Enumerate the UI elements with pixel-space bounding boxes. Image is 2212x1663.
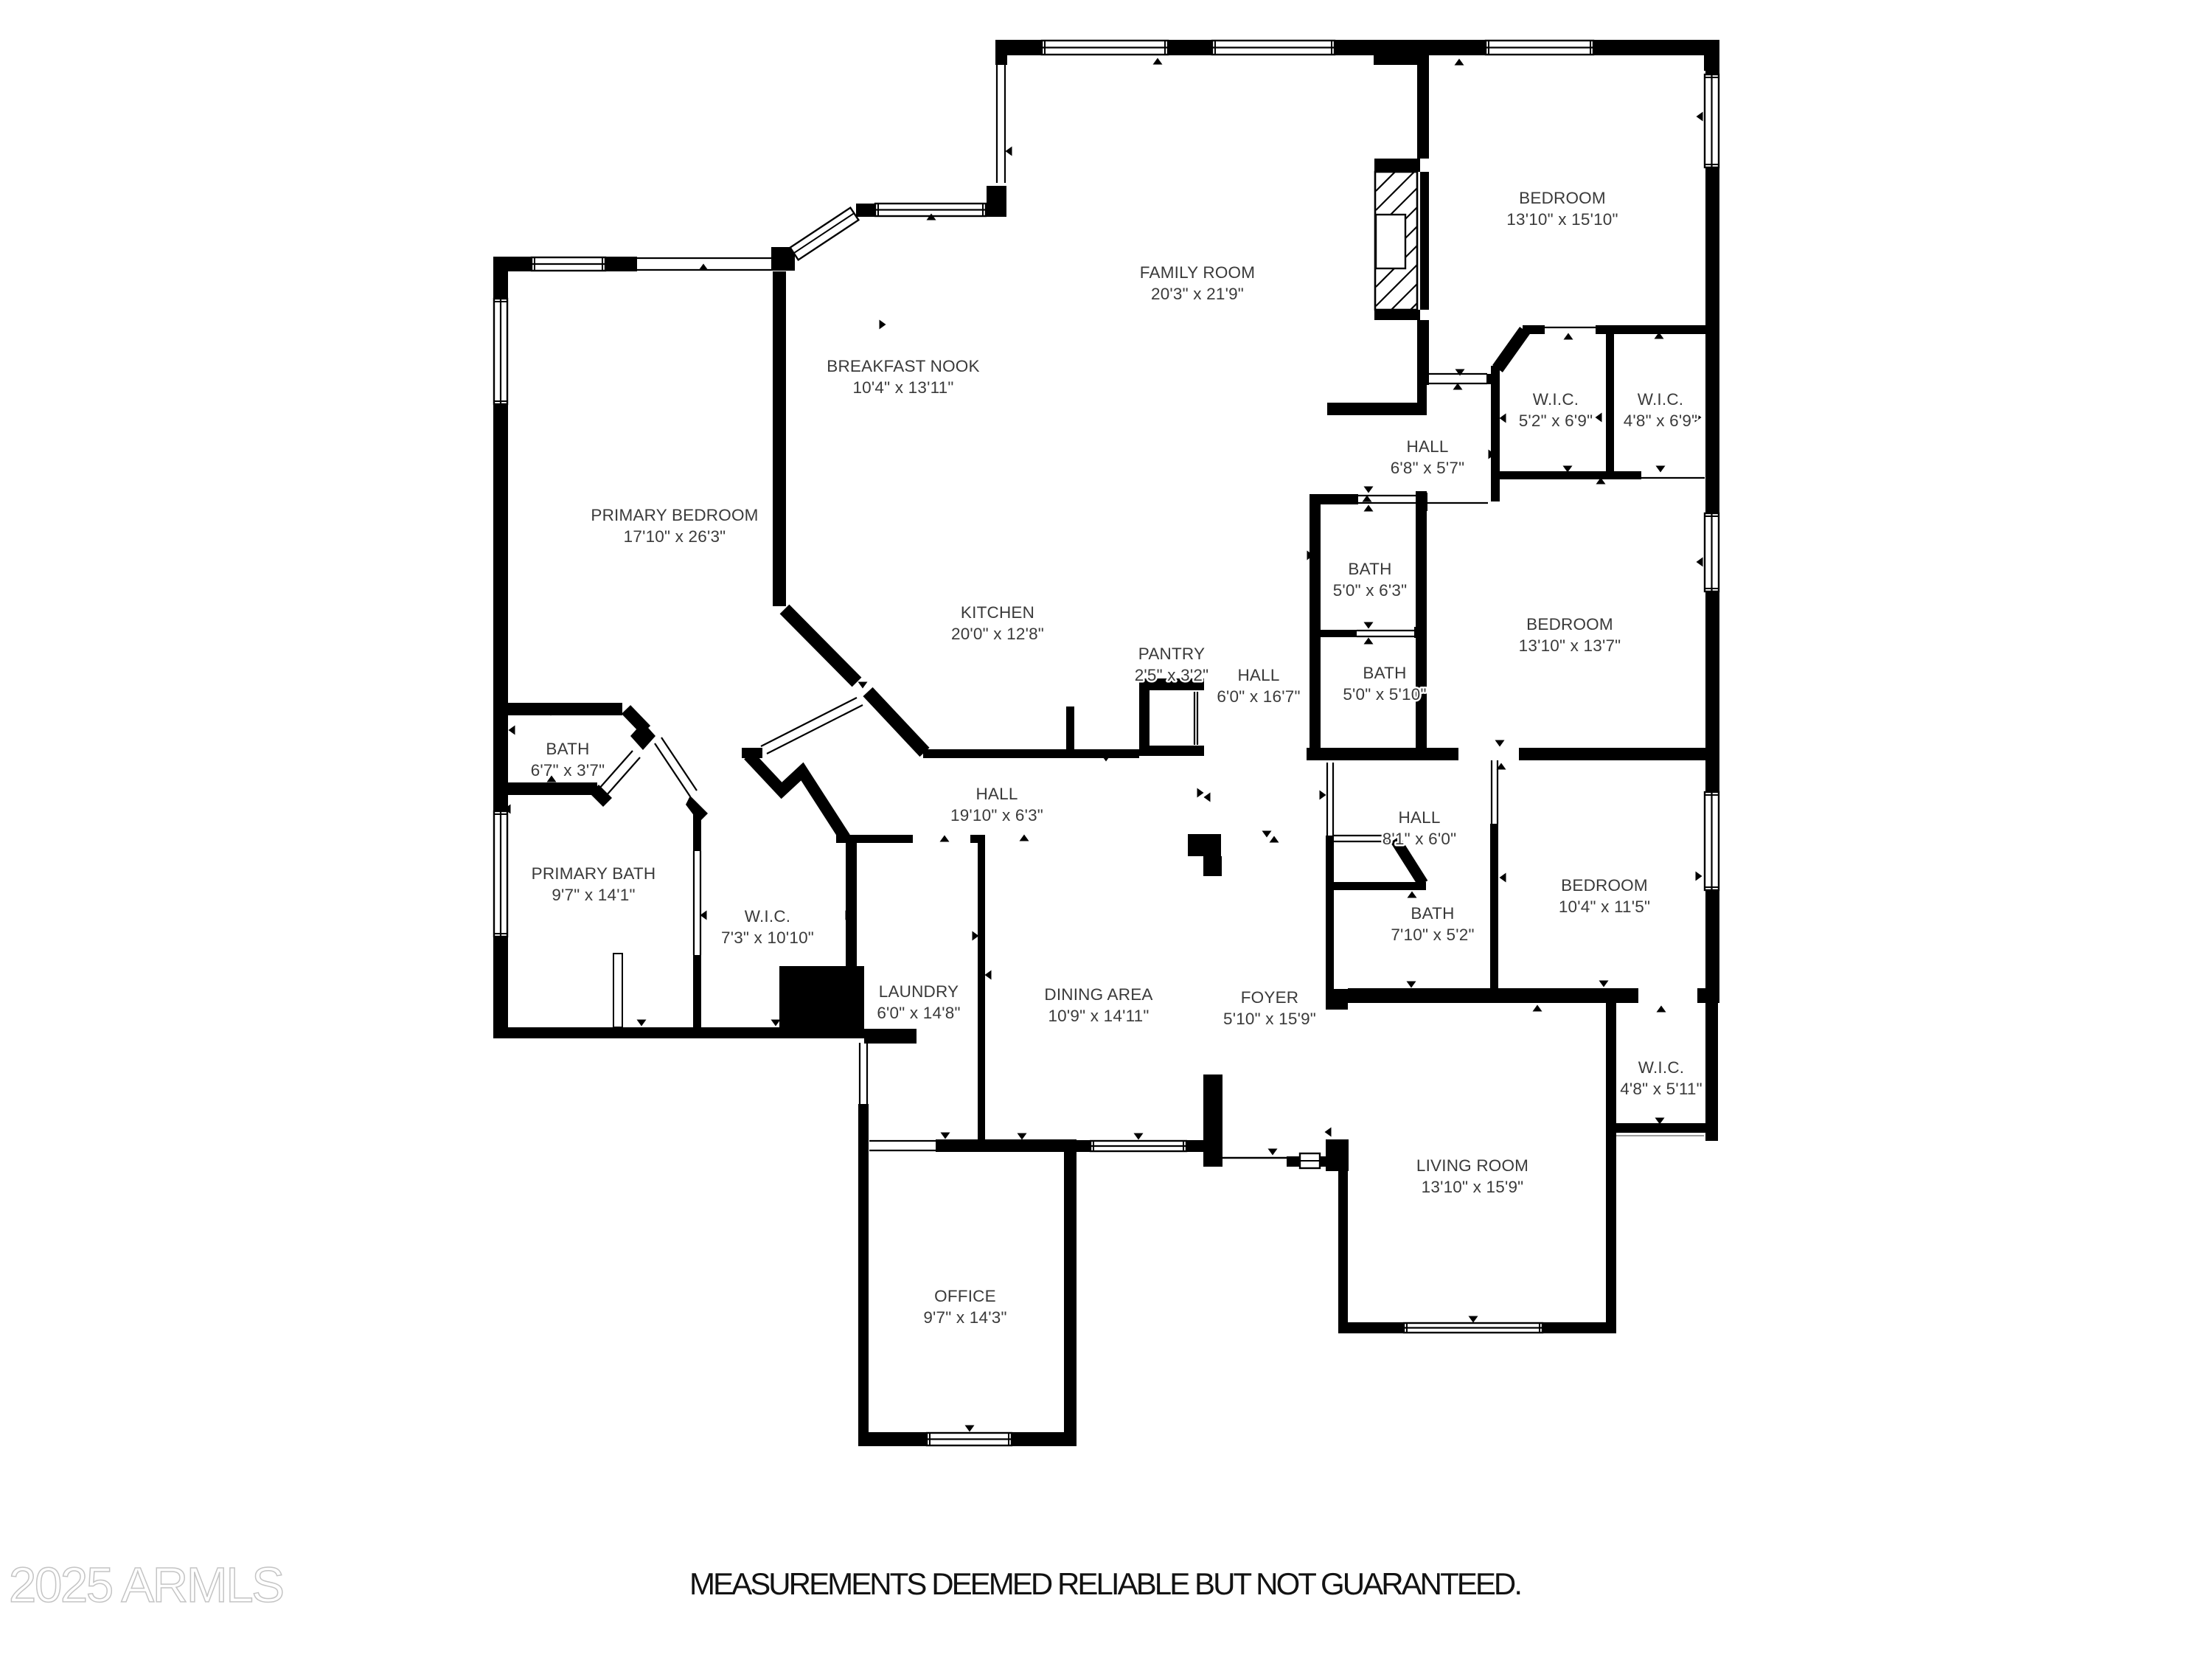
svg-text:BEDROOM: BEDROOM bbox=[1519, 189, 1606, 207]
svg-text:HALL: HALL bbox=[975, 785, 1018, 803]
svg-text:13'10" x 15'9": 13'10" x 15'9" bbox=[1422, 1178, 1524, 1196]
svg-text:6'7" x 3'7": 6'7" x 3'7" bbox=[531, 761, 605, 780]
svg-text:9'7" x 14'1": 9'7" x 14'1" bbox=[552, 886, 635, 904]
svg-text:W.I.C.: W.I.C. bbox=[1533, 390, 1579, 409]
svg-text:BATH: BATH bbox=[1363, 664, 1406, 682]
svg-text:BEDROOM: BEDROOM bbox=[1526, 615, 1613, 633]
svg-text:BATH: BATH bbox=[546, 740, 589, 758]
svg-text:BATH: BATH bbox=[1348, 560, 1391, 578]
svg-text:W.I.C.: W.I.C. bbox=[1638, 390, 1683, 409]
svg-text:LIVING ROOM: LIVING ROOM bbox=[1416, 1156, 1528, 1175]
svg-text:5'2" x 6'9": 5'2" x 6'9" bbox=[1519, 412, 1593, 430]
svg-text:4'8" x 5'11": 4'8" x 5'11" bbox=[1620, 1080, 1703, 1098]
svg-text:OFFICE: OFFICE bbox=[934, 1287, 996, 1305]
svg-text:13'10" x 15'10": 13'10" x 15'10" bbox=[1506, 210, 1618, 229]
svg-text:HALL: HALL bbox=[1237, 666, 1279, 684]
svg-text:PANTRY: PANTRY bbox=[1138, 645, 1205, 663]
svg-text:6'0" x 16'7": 6'0" x 16'7" bbox=[1217, 687, 1300, 706]
svg-text:FOYER: FOYER bbox=[1241, 988, 1299, 1007]
svg-text:LAUNDRY: LAUNDRY bbox=[879, 982, 959, 1001]
svg-text:MEASUREMENTS DEEMED RELIABLE B: MEASUREMENTS DEEMED RELIABLE BUT NOT GUA… bbox=[689, 1566, 1523, 1601]
svg-text:HALL: HALL bbox=[1406, 437, 1448, 456]
svg-text:9'7" x 14'3": 9'7" x 14'3" bbox=[923, 1308, 1006, 1327]
svg-text:5'10" x 15'9": 5'10" x 15'9" bbox=[1223, 1010, 1316, 1028]
svg-text:PRIMARY BEDROOM: PRIMARY BEDROOM bbox=[591, 506, 758, 524]
svg-text:DINING AREA: DINING AREA bbox=[1044, 985, 1152, 1004]
svg-text:10'4" x 13'11": 10'4" x 13'11" bbox=[852, 378, 953, 397]
svg-text:7'10" x 5'2": 7'10" x 5'2" bbox=[1391, 926, 1474, 944]
svg-text:BEDROOM: BEDROOM bbox=[1561, 876, 1648, 895]
svg-text:13'10" x 13'7": 13'10" x 13'7" bbox=[1519, 636, 1621, 655]
svg-text:6'0" x 14'8": 6'0" x 14'8" bbox=[877, 1004, 960, 1022]
svg-text:BREAKFAST NOOK: BREAKFAST NOOK bbox=[827, 357, 979, 375]
svg-text:8'1" x 6'0": 8'1" x 6'0" bbox=[1382, 830, 1457, 848]
svg-text:5'0" x 5'10": 5'0" x 5'10" bbox=[1343, 685, 1426, 704]
svg-text:6'8" x 5'7": 6'8" x 5'7" bbox=[1391, 459, 1465, 477]
svg-text:10'9" x 14'11": 10'9" x 14'11" bbox=[1048, 1007, 1149, 1025]
svg-text:17'10" x 26'3": 17'10" x 26'3" bbox=[624, 527, 726, 546]
svg-text:KITCHEN: KITCHEN bbox=[961, 603, 1034, 622]
svg-text:7'3" x 10'10": 7'3" x 10'10" bbox=[721, 928, 814, 947]
svg-text:2'5" x 3'2": 2'5" x 3'2" bbox=[1135, 666, 1209, 684]
svg-text:W.I.C.: W.I.C. bbox=[745, 907, 790, 926]
svg-text:BATH: BATH bbox=[1411, 904, 1454, 923]
svg-text:PRIMARY BATH: PRIMARY BATH bbox=[532, 864, 656, 883]
svg-text:4'8" x 6'9": 4'8" x 6'9" bbox=[1624, 412, 1698, 430]
svg-text:20'0" x 12'8": 20'0" x 12'8" bbox=[951, 625, 1044, 643]
svg-text:5'0" x 6'3": 5'0" x 6'3" bbox=[1333, 581, 1408, 600]
svg-text:10'4" x 11'5": 10'4" x 11'5" bbox=[1559, 898, 1650, 916]
svg-text:19'10" x 6'3": 19'10" x 6'3" bbox=[950, 806, 1043, 824]
svg-text:HALL: HALL bbox=[1398, 808, 1440, 827]
svg-text:W.I.C.: W.I.C. bbox=[1638, 1058, 1684, 1077]
svg-text:2025 ARMLS: 2025 ARMLS bbox=[9, 1558, 288, 1613]
svg-text:FAMILY ROOM: FAMILY ROOM bbox=[1140, 263, 1255, 282]
svg-text:20'3" x 21'9": 20'3" x 21'9" bbox=[1151, 285, 1244, 303]
